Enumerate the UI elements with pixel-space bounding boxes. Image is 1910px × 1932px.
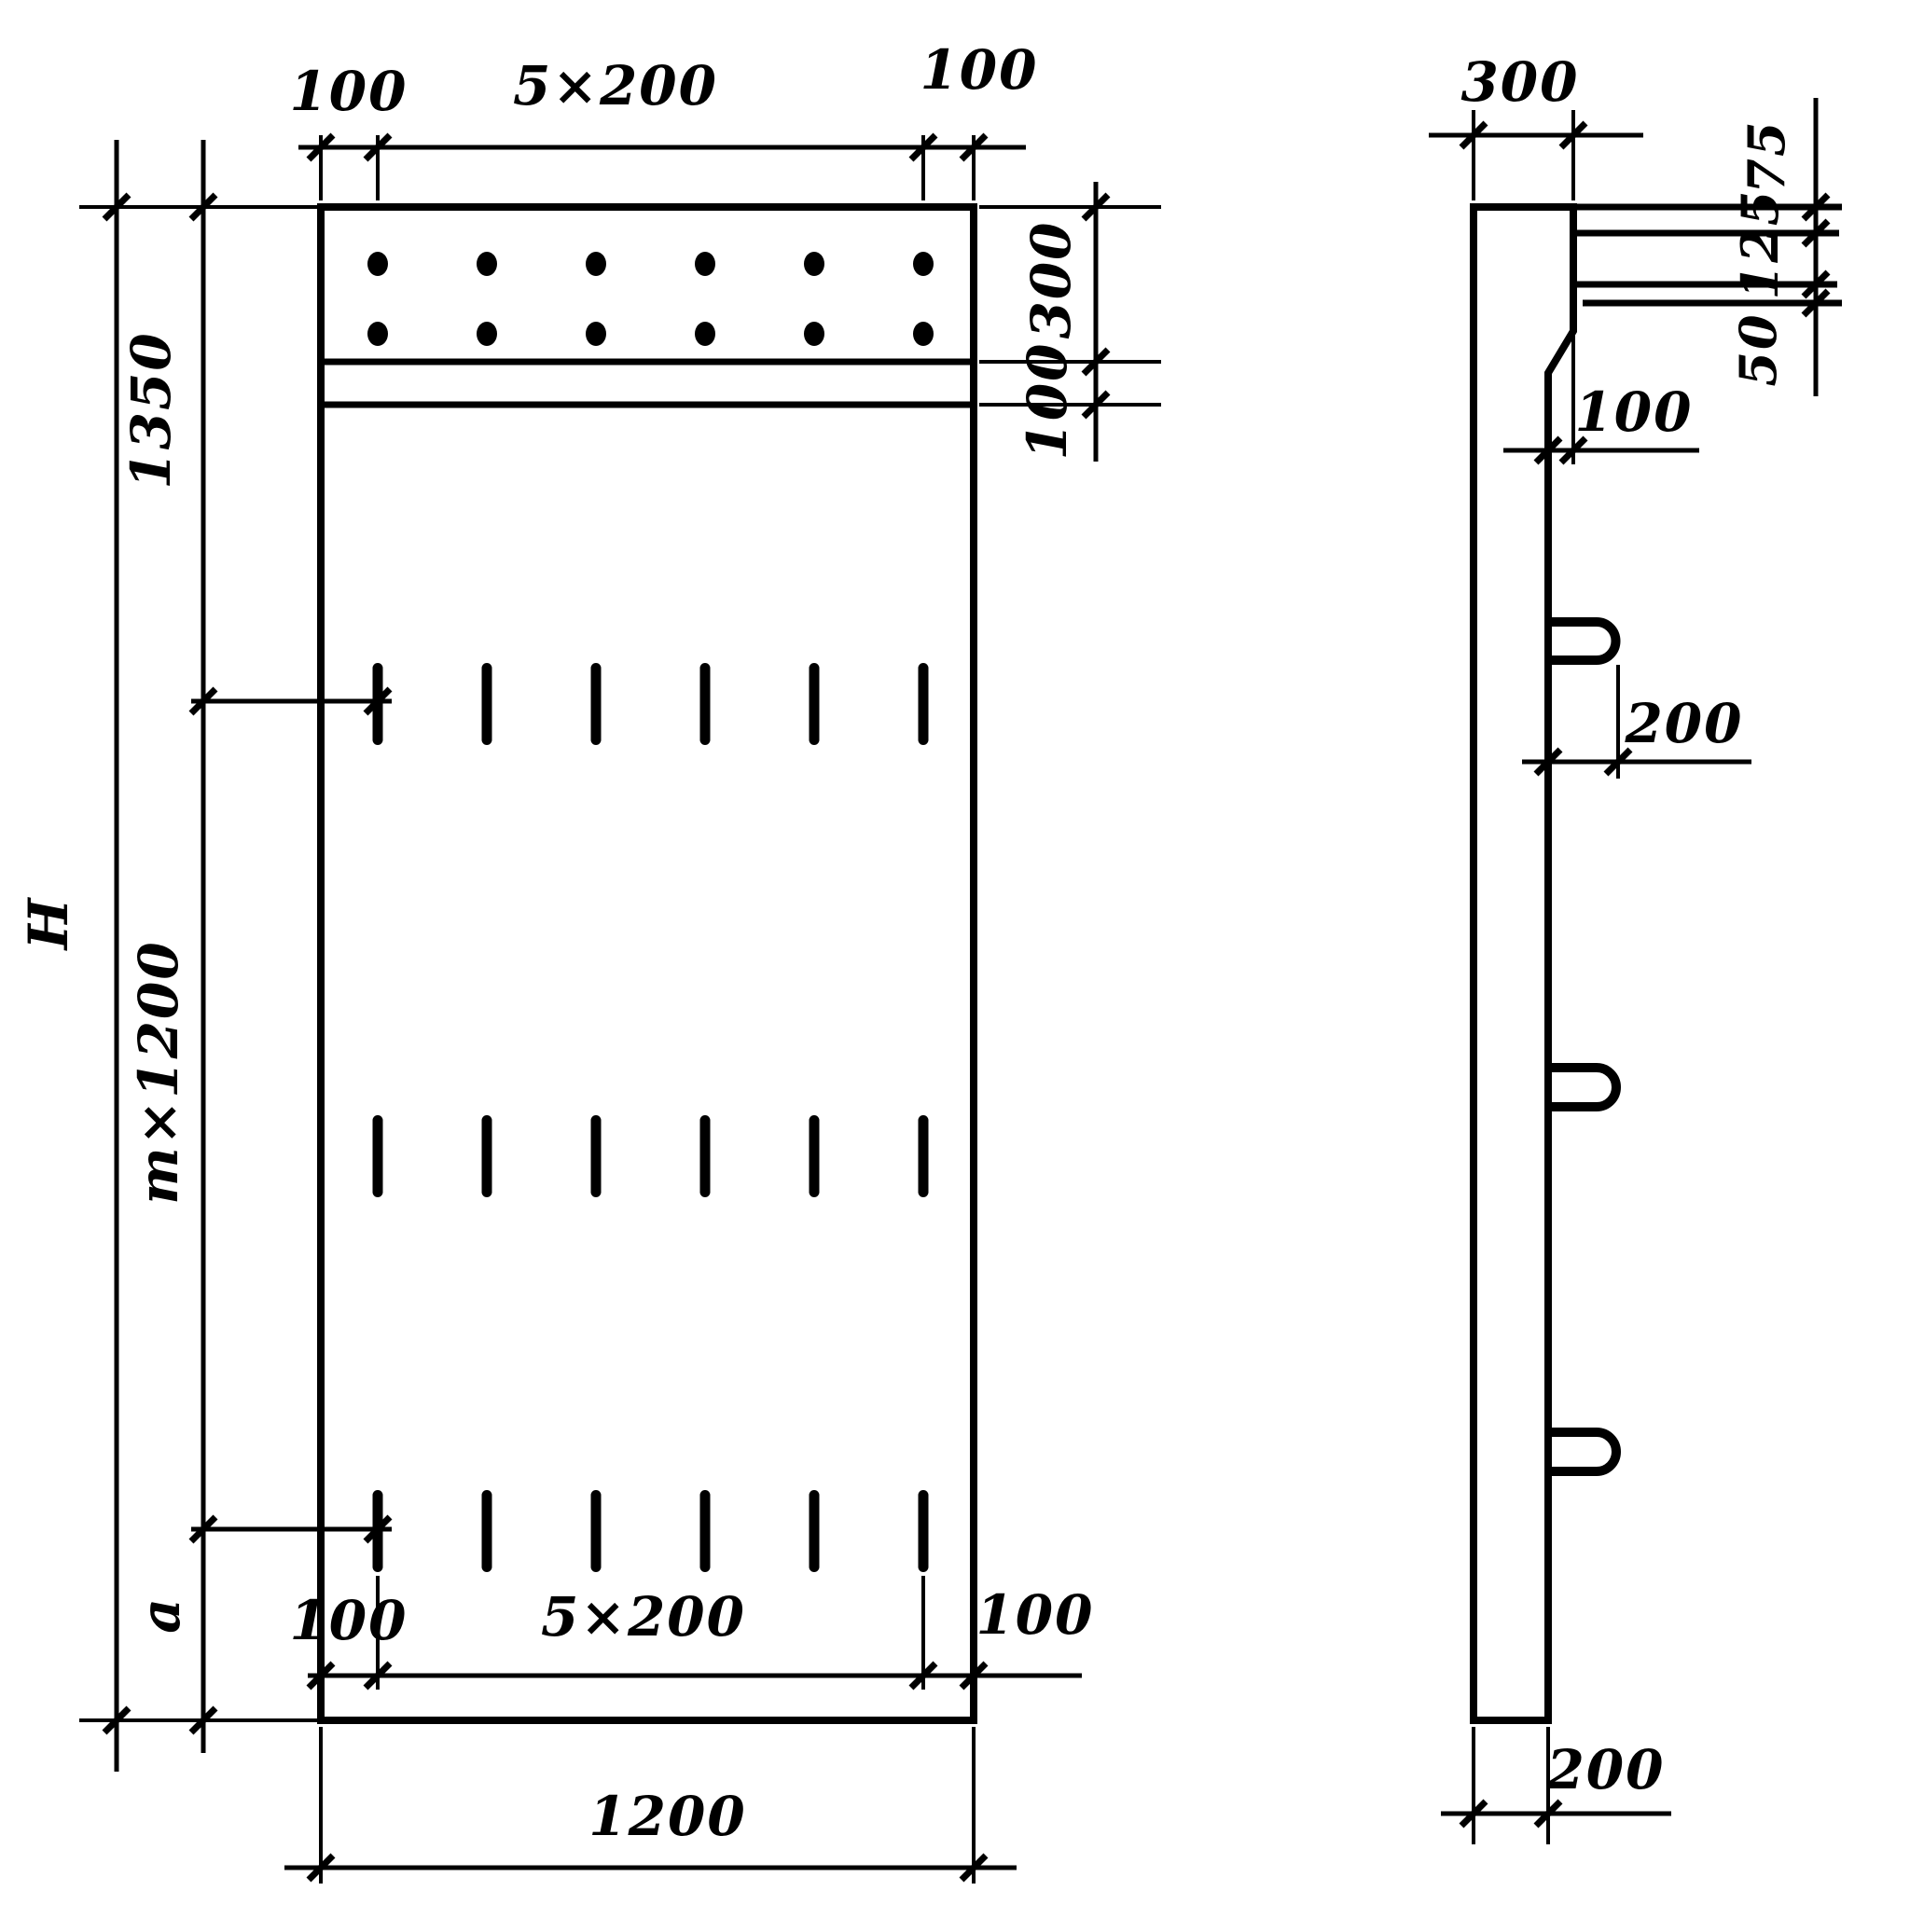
front-right-dimension: 300 100 [979,182,1161,462]
panel-drawing: 100 5×200 100 300 100 [0,0,1910,1932]
dim-side-right-top: 75 [1737,119,1796,193]
front-bottom-overall-dimension: 1200 [284,1727,1017,1884]
dim-front-top-left-margin: 100 [289,60,408,123]
side-top-dimension: 300 [1429,50,1643,200]
anchor-holes [367,252,934,346]
side-right-dimension: 75 125 50 [1728,98,1828,396]
dim-front-bottom-zone: a [129,1596,192,1634]
loop-end-marks [373,663,929,1572]
side-profile-outline [1474,207,1573,1720]
dim-side-ledge-offset: 100 [1574,380,1693,444]
dim-front-top-hole-spacing: 5×200 [513,54,718,117]
front-panel-outline [321,207,974,1720]
dim-side-right-middle: 125 [1730,189,1790,300]
dim-front-top-zone: 1350 [119,331,183,489]
side-loop-reach-dimension: 200 [1522,665,1751,779]
side-ledge-lines [1573,207,1842,303]
dim-front-cap-strip-height: 300 [1019,220,1083,338]
dim-front-bottom-loop-spacing: 5×200 [541,1585,746,1649]
front-view: 100 5×200 100 300 100 [17,38,1161,1884]
dim-side-loop-reach: 200 [1624,692,1743,755]
dim-front-top-right-margin: 100 [920,38,1038,102]
dim-front-overall-height: H [17,896,80,951]
dim-front-bottom-right-margin: 100 [976,1583,1094,1647]
dim-front-overall-width: 1200 [588,1785,746,1848]
dim-side-bottom-thickness: 200 [1545,1738,1665,1801]
dim-front-bottom-left-margin: 100 [289,1589,408,1652]
dim-side-top-width: 300 [1460,50,1579,114]
front-top-dimension: 100 5×200 100 [289,38,1038,200]
dim-front-middle-zone: m×1200 [127,940,190,1204]
side-ledge-offset-dimension: 100 [1503,336,1699,464]
dim-side-right-bottom: 50 [1728,312,1788,386]
front-left-dimension: H 1350 m×1200 a [17,140,392,1772]
dim-front-band-height: 100 [1016,341,1079,460]
side-view: 300 75 125 50 100 200 [1429,50,1842,1844]
side-bottom-dimension: 200 [1441,1727,1671,1844]
technical-drawing-sheet: 100 5×200 100 300 100 [0,0,1910,1932]
